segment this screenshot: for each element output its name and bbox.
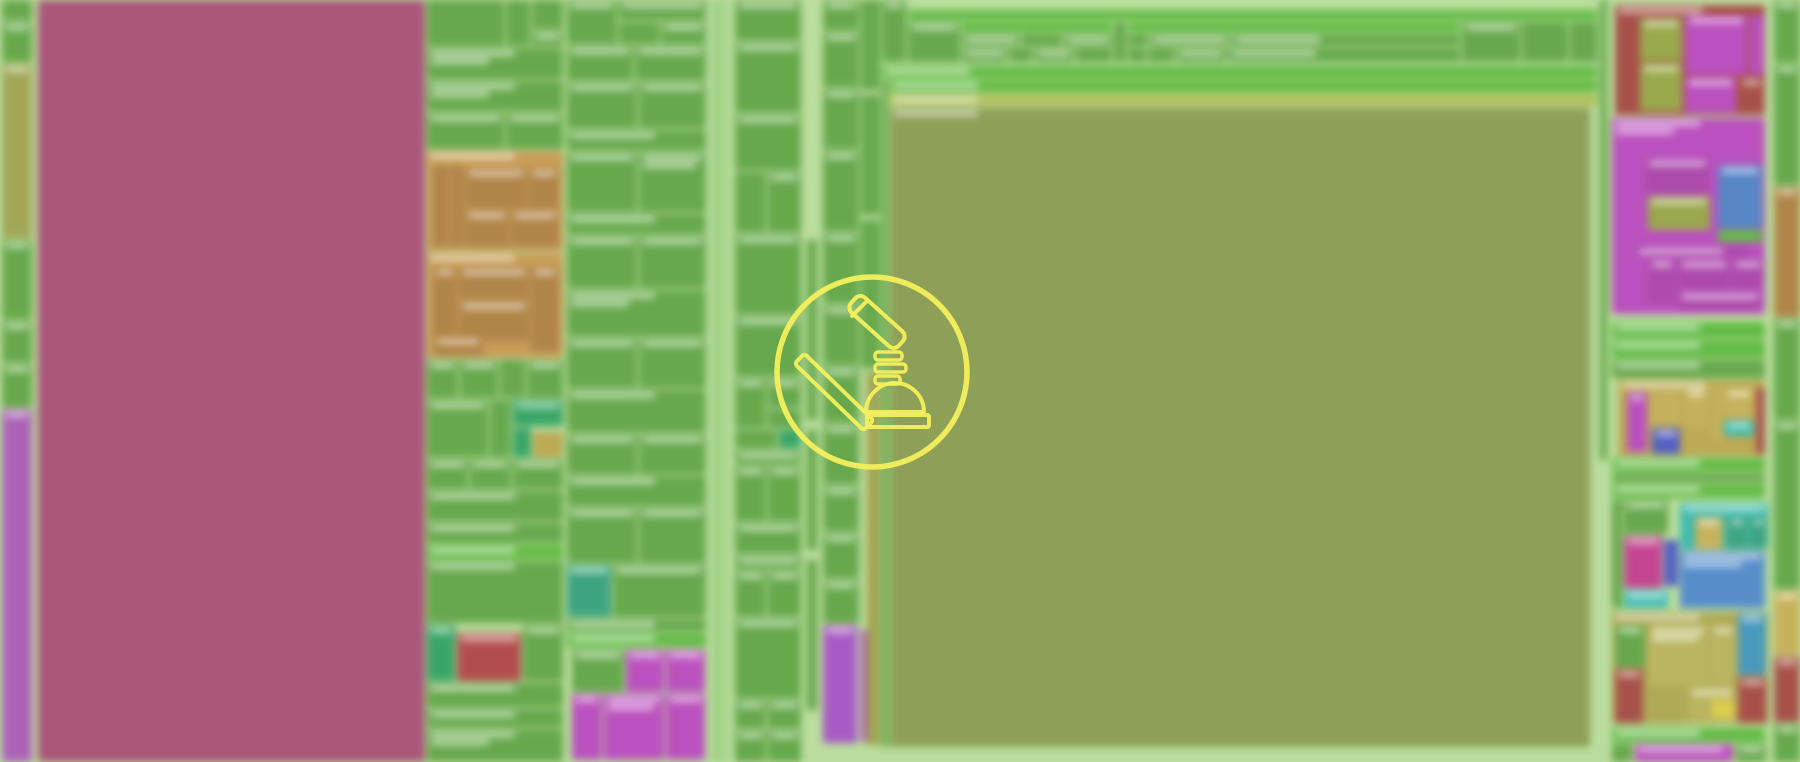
tile-label-smudge [1236, 37, 1320, 42]
treemap-tile [427, 48, 563, 79]
treemap-tile [427, 683, 563, 707]
treemap-tile [1645, 158, 1710, 194]
gavel-dome [866, 383, 924, 412]
tile-label-smudge [1714, 628, 1732, 633]
treemap-tile [713, 0, 719, 762]
treemap-tile [823, 89, 859, 149]
treemap-tile [1064, 34, 1112, 46]
tile-label-smudge [571, 622, 655, 627]
treemap-tile [962, 34, 1020, 46]
treemap-tile [1128, 34, 1148, 46]
treemap-tile [639, 152, 706, 212]
tile-label-smudge [571, 293, 655, 298]
treemap-tile [532, 31, 563, 46]
tile-label-smudge [431, 403, 484, 408]
treemap-tile [567, 476, 706, 506]
tile-label-smudge [894, 111, 978, 116]
treemap-tile [572, 650, 624, 692]
tile-label-smudge [639, 49, 702, 54]
treemap-tile [427, 360, 458, 398]
tile-label-smudge [739, 469, 762, 474]
tile-label-smudge [772, 175, 797, 180]
treemap-tile [1736, 744, 1766, 762]
tile-label-smudge [1722, 168, 1758, 173]
tile-label-smudge [431, 154, 515, 159]
tile-label-smudge [431, 363, 454, 368]
treemap-tile [1774, 421, 1800, 589]
tile-label-smudge [576, 697, 598, 702]
treemap-tile [908, 10, 1597, 20]
treemap-tile [427, 400, 488, 457]
tile-label-smudge [1778, 3, 1796, 8]
tile-label-smudge [665, 25, 702, 30]
treemap-tile [1750, 15, 1764, 75]
treemap-tile [1718, 165, 1762, 228]
tile-label-smudge [431, 59, 489, 64]
tile-label-smudge [1628, 593, 1664, 598]
treemap-tile [460, 360, 498, 398]
tile-label-smudge [1616, 615, 1700, 620]
treemap-tile [1612, 474, 1765, 482]
tile-label-smudge [535, 270, 555, 275]
tile-label-smudge [1644, 66, 1678, 71]
treemap-tile [1640, 63, 1682, 111]
tile-label-smudge [739, 117, 797, 122]
treemap-tile [768, 730, 801, 762]
tile-label-smudge [1038, 51, 1070, 56]
tile-label-smudge [431, 628, 451, 633]
tile-label-smudge [643, 239, 702, 244]
tile-label-smudge [772, 703, 797, 708]
tile-label-smudge [1616, 731, 1700, 736]
treemap-tile [1022, 34, 1062, 46]
tile-label-smudge [1682, 294, 1758, 299]
profiler-treemap-screen [0, 0, 1800, 762]
treemap-tile [639, 82, 706, 128]
tile-label-smudge [1639, 747, 1723, 752]
treemap-tile [1624, 536, 1662, 588]
treemap-tile [451, 165, 463, 247]
treemap-tile [427, 545, 563, 559]
tile-label-smudge [772, 574, 797, 579]
tile-label-smudge [772, 733, 797, 738]
tile-label-smudge [571, 49, 629, 54]
treemap-tile [1640, 18, 1682, 61]
tile-label-smudge [1649, 161, 1706, 166]
treemap-tile [567, 633, 706, 647]
tile-label-smudge [6, 243, 28, 248]
treemap-tile [1774, 591, 1800, 655]
tile-label-smudge [571, 155, 633, 160]
gavel-icon [772, 272, 972, 472]
tile-label-smudge [966, 37, 1016, 42]
tile-label-smudge [1644, 21, 1678, 26]
treemap-tile [523, 625, 563, 681]
tile-label-smudge [431, 92, 489, 97]
tile-label-smudge [6, 412, 28, 417]
treemap-tile [890, 94, 1597, 106]
tile-label-smudge [533, 171, 555, 176]
gavel-head-cap [852, 302, 866, 316]
treemap-tile [513, 400, 563, 426]
treemap-tile [823, 625, 857, 743]
treemap-tile [427, 561, 563, 623]
treemap-tile [567, 82, 637, 128]
tile-label-smudge [431, 51, 515, 56]
treemap-tile [735, 571, 766, 616]
treemap-tile [1678, 259, 1730, 289]
treemap-tile [533, 432, 563, 457]
treemap-tile [2, 364, 32, 407]
tile-label-smudge [827, 154, 855, 159]
tile-label-smudge [643, 341, 702, 346]
treemap-tile [513, 428, 531, 457]
tile-label-smudge [571, 393, 655, 398]
tile-label-smudge [894, 97, 978, 102]
tile-label-smudge [571, 341, 633, 346]
tile-label-smudge [739, 3, 797, 8]
tile-label-smudge [886, 69, 970, 74]
treemap-tile [768, 700, 801, 728]
treemap-tile [639, 434, 706, 474]
treemap-tile [908, 22, 960, 62]
treemap-tile [427, 729, 563, 762]
tile-label-smudge [431, 712, 515, 717]
treemap-tile [459, 267, 529, 299]
tile-label-smudge [1068, 37, 1108, 42]
treemap-tile [567, 236, 637, 288]
tile-label-smudge [623, 3, 702, 8]
treemap-tile [532, 0, 563, 29]
tile-label-smudge [1689, 18, 1743, 23]
tile-label-smudge [739, 381, 762, 386]
treemap-tile [1034, 48, 1074, 62]
treemap-tile [427, 113, 504, 149]
tile-label-smudge [739, 237, 797, 242]
treemap-tile [735, 555, 801, 569]
tile-label-smudge [608, 705, 654, 710]
treemap-tile [500, 360, 525, 398]
treemap-tile [768, 571, 801, 616]
tile-label-smudge [966, 51, 1004, 56]
treemap-tile [1114, 22, 1126, 62]
tile-label-smudge [1616, 363, 1700, 368]
tile-label-smudge [6, 324, 28, 329]
tile-label-smudge [1652, 636, 1698, 641]
tile-label-smudge [1688, 391, 1704, 396]
tile-label-smudge [1628, 503, 1664, 508]
tile-label-smudge [571, 479, 655, 484]
treemap-tile [1600, 0, 1607, 460]
tile-label-smudge [1619, 672, 1639, 677]
tile-label-smudge [571, 568, 607, 573]
gavel-head [847, 293, 908, 351]
treemap-tile [427, 523, 563, 543]
tile-label-smudge [1699, 520, 1719, 525]
tile-label-smudge [431, 256, 515, 261]
treemap-tile [459, 301, 529, 341]
treemap-tile [1685, 15, 1747, 75]
treemap-tile [1710, 625, 1736, 685]
tile-label-smudge [1689, 80, 1732, 85]
treemap-tile [457, 633, 521, 681]
tile-label-smudge [886, 3, 902, 8]
tile-label-smudge [643, 85, 702, 90]
tile-label-smudge [469, 213, 505, 218]
tile-label-smudge [527, 628, 559, 633]
treemap-tile [890, 80, 1597, 92]
tile-label-smudge [1684, 562, 1742, 567]
treemap-tile [567, 152, 637, 212]
tile-label-smudge [739, 45, 797, 50]
treemap-tile [890, 108, 1590, 747]
treemap-tile [882, 66, 1597, 78]
treemap-tile [506, 113, 563, 149]
treemap-tile [567, 565, 611, 617]
treemap-tile [639, 508, 706, 563]
gavel-thread-2 [875, 364, 906, 372]
treemap-tile [1774, 187, 1800, 317]
gavel-status-overlay [772, 272, 972, 472]
tile-label-smudge [1639, 249, 1723, 254]
tile-label-smudge [739, 526, 797, 531]
treemap-tile [604, 694, 664, 760]
treemap-tile [427, 0, 504, 46]
tile-label-smudge [571, 636, 655, 641]
tile-label-smudge [1778, 424, 1796, 429]
treemap-tile [1739, 77, 1764, 113]
tile-label-smudge [739, 733, 762, 738]
tile-label-smudge [431, 116, 500, 121]
treemap-tile [567, 0, 617, 44]
treemap-tile [1652, 428, 1680, 454]
treemap-tile [38, 0, 425, 762]
tile-label-smudge [1740, 747, 1762, 752]
tile-label-smudge [617, 568, 701, 573]
treemap-tile [1678, 291, 1762, 310]
treemap-tile [433, 336, 483, 356]
treemap-tile [1774, 0, 1800, 62]
treemap-tile [1232, 34, 1460, 46]
tile-label-smudge [464, 363, 494, 368]
treemap-tile [1627, 392, 1647, 452]
treemap-tile [511, 210, 559, 247]
treemap-tile [1148, 48, 1174, 62]
tile-label-smudge [1684, 506, 1764, 511]
tile-label-smudge [1652, 628, 1704, 633]
treemap-tile [567, 390, 706, 432]
tile-label-smudge [827, 92, 855, 97]
tile-label-smudge [1731, 520, 1743, 525]
tile-label-smudge [437, 270, 453, 275]
treemap-tile [1774, 657, 1800, 722]
treemap-tile [666, 694, 705, 760]
treemap-tile [427, 81, 563, 111]
treemap-tile [1624, 500, 1668, 534]
treemap-tile [639, 236, 706, 288]
tile-label-smudge [912, 25, 956, 30]
treemap-tile [735, 114, 801, 170]
tile-label-smudge [571, 133, 655, 138]
tile-label-smudge [1180, 51, 1222, 56]
tile-label-smudge [643, 155, 702, 160]
treemap-tile [1724, 420, 1754, 436]
treemap-tile [1774, 64, 1800, 185]
tile-label-smudge [739, 558, 797, 563]
treemap-tile [1648, 625, 1708, 685]
tile-label-smudge [1466, 25, 1516, 30]
treemap-tile [567, 434, 637, 474]
treemap-tile [2, 321, 32, 362]
tile-label-smudge [1682, 262, 1726, 267]
treemap-tile [1774, 724, 1800, 762]
tile-label-smudge [827, 3, 855, 8]
tile-label-smudge [827, 536, 855, 541]
tile-label-smudge [6, 367, 28, 372]
tile-label-smudge [739, 574, 762, 579]
treemap-tile [1738, 677, 1767, 723]
treemap-tile [661, 22, 706, 44]
tile-label-smudge [461, 636, 517, 641]
tile-label-smudge [1631, 395, 1643, 400]
tile-label-smudge [608, 697, 660, 702]
treemap-tile [962, 22, 1112, 32]
tile-label-smudge [670, 653, 701, 658]
treemap-tile [465, 168, 527, 208]
treemap-tile [567, 338, 637, 388]
tile-label-smudge [1656, 431, 1676, 436]
tile-label-smudge [1616, 343, 1700, 348]
treemap-tile [1612, 484, 1765, 498]
tile-label-smudge [1616, 325, 1700, 330]
tile-label-smudge [1778, 67, 1796, 72]
treemap-tile [1684, 388, 1708, 428]
treemap-tile [861, 95, 880, 215]
tile-label-smudge [536, 34, 559, 39]
tile-label-smudge [1154, 37, 1226, 42]
treemap-tile [470, 459, 511, 489]
tile-label-smudge [571, 301, 629, 306]
treemap-tile [1612, 322, 1765, 338]
tile-label-smudge [827, 583, 855, 588]
treemap-tile [735, 0, 801, 40]
tile-label-smudge [739, 621, 797, 626]
treemap-tile [1712, 700, 1734, 718]
tile-label-smudge [571, 239, 633, 244]
tile-label-smudge [643, 163, 696, 168]
treemap-tile [427, 459, 468, 489]
treemap-tile [1756, 388, 1765, 454]
treemap-tile [768, 172, 801, 232]
treemap-tile [1522, 22, 1568, 62]
treemap-tile [666, 650, 705, 692]
treemap-tile [567, 290, 706, 336]
tile-label-smudge [6, 25, 28, 30]
tile-label-smudge [437, 339, 479, 344]
tile-label-smudge [1619, 8, 1703, 13]
treemap-tile [735, 466, 766, 521]
treemap-tile [1612, 728, 1765, 742]
treemap-tile [1570, 22, 1597, 62]
treemap-tile [768, 466, 801, 521]
tile-label-smudge [670, 697, 701, 702]
treemap-tile [1615, 669, 1643, 723]
treemap-tile [639, 338, 706, 388]
treemap-tile [1680, 551, 1765, 608]
treemap-tile [807, 560, 817, 710]
treemap-tile [2, 409, 32, 762]
treemap-tile [2, 0, 32, 20]
tile-label-smudge [827, 35, 855, 40]
tile-label-smudge [1728, 423, 1750, 428]
treemap-tile [735, 523, 801, 553]
tile-label-smudge [517, 403, 559, 408]
treemap-tile [427, 491, 563, 521]
treemap-tile [735, 172, 766, 232]
treemap-tile [1612, 360, 1765, 378]
tile-label-smudge [1742, 680, 1763, 685]
treemap-tile [529, 168, 559, 208]
treemap-tile [1624, 590, 1668, 608]
tile-label-smudge [1728, 391, 1750, 396]
treemap-tile [735, 42, 801, 112]
treemap-tile [567, 508, 637, 563]
tile-label-smudge [1619, 628, 1641, 633]
treemap-tile [1128, 48, 1146, 62]
treemap-tile [2, 64, 32, 238]
tile-label-smudge [431, 740, 489, 745]
treemap-tile [572, 694, 602, 760]
tile-label-smudge [827, 628, 853, 633]
treemap-tile [823, 0, 859, 30]
tile-label-smudge [1743, 80, 1760, 85]
tile-label-smudge [1692, 690, 1732, 695]
treemap-tile [1612, 500, 1622, 608]
treemap-tile [433, 165, 449, 247]
treemap-tile [1615, 625, 1645, 667]
treemap-tile [567, 214, 706, 234]
treemap-tile [1648, 259, 1676, 303]
tile-label-smudge [431, 526, 515, 531]
treemap-tile [1076, 48, 1112, 62]
tile-label-smudge [571, 3, 613, 8]
tile-label-smudge [469, 171, 523, 176]
treemap-tile [626, 650, 664, 692]
tile-label-smudge [431, 462, 464, 467]
treemap-tile [567, 619, 706, 631]
treemap-tile [1664, 540, 1678, 586]
treemap-tile [567, 130, 706, 150]
treemap-tile [722, 0, 726, 762]
treemap-tile [861, 0, 880, 90]
treemap-tile [1648, 196, 1710, 230]
gavel-handle [795, 354, 874, 431]
tile-label-smudge [1628, 539, 1658, 544]
treemap-tile [1010, 48, 1032, 62]
treemap-tile [735, 430, 777, 448]
treemap-tile [506, 0, 530, 46]
treemap-tile [619, 22, 659, 44]
treemap-tile [735, 618, 801, 698]
treemap-tile [1750, 517, 1767, 549]
tile-label-smudge [431, 564, 515, 569]
treemap-tile [1612, 458, 1765, 472]
treemap-tile [619, 0, 706, 20]
treemap-tile [490, 400, 511, 457]
gavel-base-bar [867, 415, 929, 427]
tile-label-smudge [576, 653, 620, 658]
tile-label-smudge [1778, 190, 1796, 195]
